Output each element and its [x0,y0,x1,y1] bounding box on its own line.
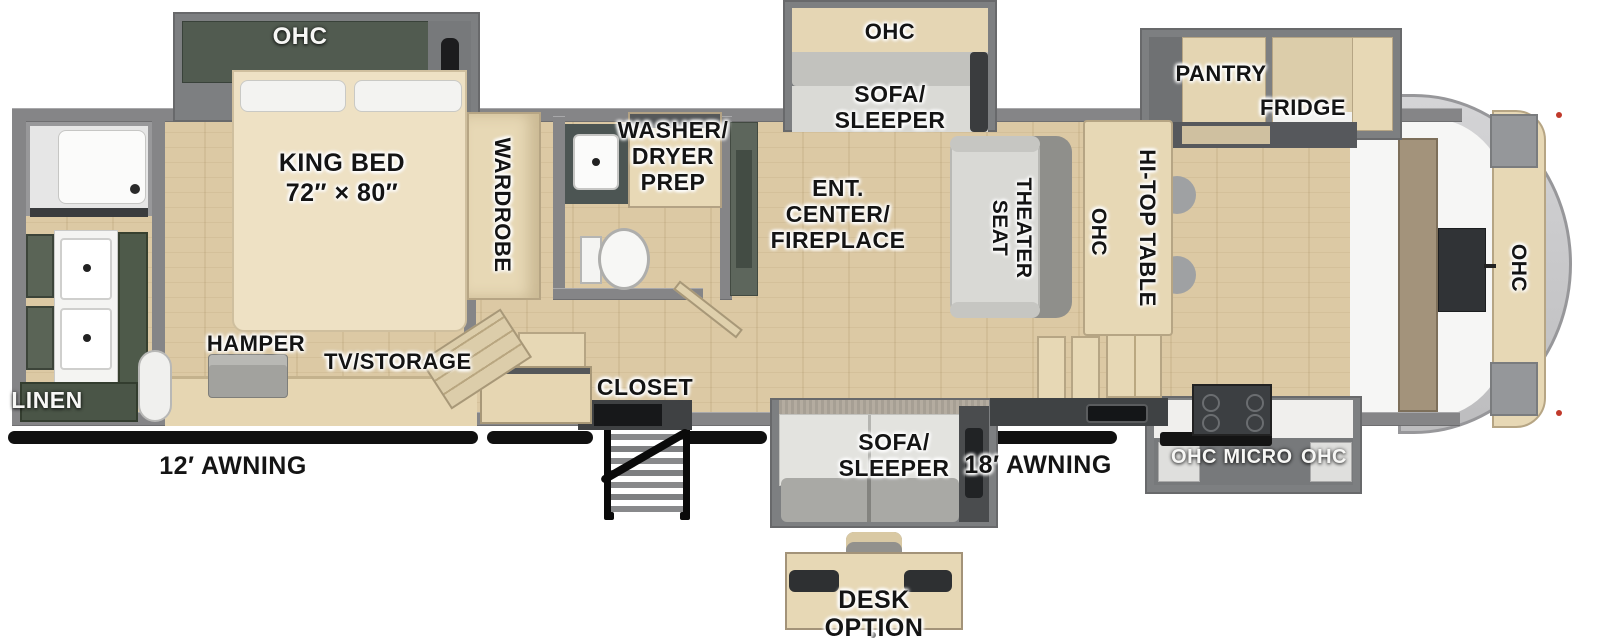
vanity-sink-2-drain [83,334,91,342]
bath-door-roller [138,350,172,422]
toilet-bowl [598,228,650,290]
shower-threshold [30,208,148,217]
bath-medicine-cabinet-2 [26,306,54,370]
wall-midbath-left [553,116,565,300]
awning-rail-18ft-b [683,431,767,444]
label-mid-ohc: OHC [1086,197,1110,267]
sofa-top-armrest [970,52,988,132]
label-closet: CLOSET [595,375,695,401]
hitop-stool-below-2 [1071,336,1100,406]
label-kitchen-ohc-left: OHC [1168,446,1220,468]
label-bedroom-ohc: OHC [240,24,360,51]
label-front-ohc: OHC [1506,233,1530,303]
hamper-box [208,354,288,398]
clearance-light-top [1556,112,1562,118]
label-king-bed: KING BED 72″ × 80″ [252,148,432,208]
label-awning-12: 12′ AWNING [158,452,308,480]
kitchen-sink [1086,404,1148,423]
clearance-light-bottom [1556,410,1562,416]
awning-rail-12ft [8,431,478,444]
label-sofa-sleeper-top: SOFA/ SLEEPER [820,82,960,134]
pantry-slide-end-cabinet [1352,37,1393,131]
bed-pillow-right [354,80,462,112]
bath-medicine-cabinet-1 [26,234,54,298]
front-tv [1438,228,1486,312]
label-tv-storage: TV/STORAGE [324,350,456,375]
label-washer-dryer: WASHER/ DRYER PREP [593,118,753,195]
label-awning-18: 18′ AWNING [963,451,1113,479]
wall-bottom-front [1362,412,1460,426]
wall-top-rear [20,108,173,122]
front-kitchen-cabinets [1398,138,1438,412]
awning-rail-18ft-a [487,431,593,444]
label-hamper: HAMPER [206,332,306,357]
label-fridge: FRIDGE [1253,96,1353,121]
label-ent-center: ENT. CENTER/ FIREPLACE [748,176,928,253]
rv-floorplan: OHC KING BED 72″ × 80″ WARDROBE WASHER/ … [0,0,1600,641]
label-wardrobe: WARDROBE [488,125,514,285]
front-ohc-end-cabinet-top [1490,114,1538,168]
label-theater-seat: THEATER SEAT [989,163,1035,293]
cooktop [1192,384,1272,436]
label-sofa-sleeper-bottom: SOFA/ SLEEPER [824,430,964,482]
front-tv-mount [1484,264,1496,268]
bed-pillow-left [240,80,346,112]
sofa-bottom-seats [781,478,959,522]
theater-seat-armrest-bottom [950,302,1040,318]
hitop-stool-below-1 [1037,336,1066,406]
theater-seat-armrest-top [950,136,1040,152]
label-hitop-table: HI-TOP TABLE [1133,133,1159,323]
label-desk-option: DESK OPTION [793,586,955,641]
front-ohc-end-cabinet-bottom [1490,362,1538,416]
wall-top-front [1402,108,1462,122]
vanity-sink-1-drain [83,264,91,272]
wall-left-end [12,108,26,426]
entry-landing-opening [594,404,662,426]
label-kitchen-ohc-right: OHC [1296,446,1352,468]
wall-bottom-mid [690,412,770,426]
kitchen-counter-wood-strip [1182,126,1270,144]
shower-drain [130,184,140,194]
label-linen: LINEN [10,388,84,414]
label-pantry: PANTRY [1171,62,1271,87]
label-sofa-top-ohc: OHC [850,20,930,45]
label-kitchen-micro: MICRO [1221,446,1295,468]
